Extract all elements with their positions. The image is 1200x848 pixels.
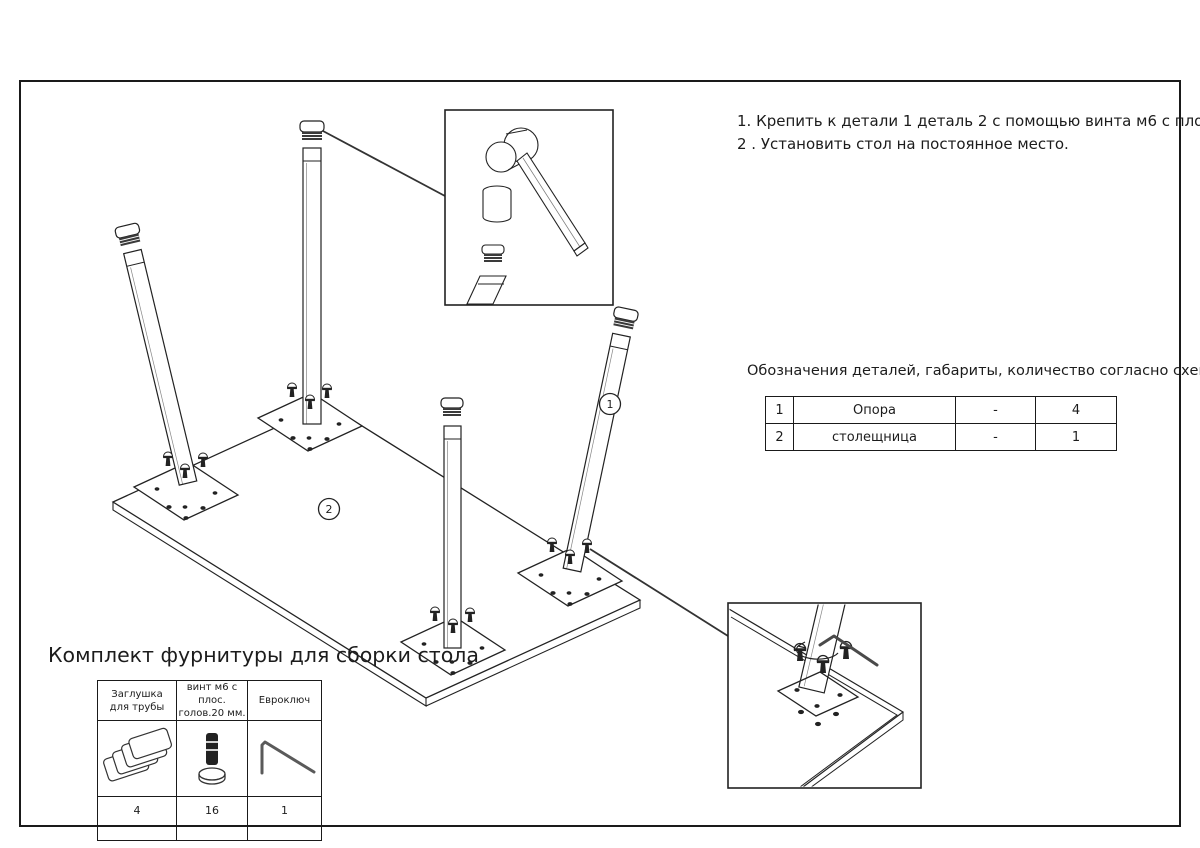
assembly-instructions: 1. Крепить к детали 1 деталь 2 с помощью…	[737, 110, 1200, 156]
part-size: -	[956, 424, 1036, 451]
part-number: 2	[766, 424, 794, 451]
detail-callout-cap	[445, 110, 613, 305]
part-name: Опора	[794, 397, 956, 424]
part-size: -	[956, 397, 1036, 424]
tube-cap-icon	[102, 727, 172, 791]
kit-qty-row: 4 16 1	[98, 797, 322, 841]
kit-item-label: винт м6 с плос. голов.20 мм.	[177, 681, 248, 721]
hex-key-icon	[252, 737, 318, 781]
kit-item-label: Евроключ	[248, 681, 322, 721]
table-leg-right	[560, 306, 639, 572]
part-qty: 1	[1036, 424, 1117, 451]
parts-table-heading: Обозначения деталей, габариты, количеств…	[747, 363, 1200, 379]
kit-icon-row	[98, 721, 322, 797]
part-label-1: 1	[600, 394, 621, 415]
hardware-kit-table: Заглушка для трубы винт м6 с плос. голов…	[97, 680, 322, 841]
kit-item-label: Заглушка для трубы	[98, 681, 177, 721]
parts-table-row: 2 столещница - 1	[766, 424, 1117, 451]
instruction-step-1: 1. Крепить к детали 1 деталь 2 с помощью…	[737, 110, 1200, 133]
part-qty: 4	[1036, 397, 1117, 424]
part-label-2: 2	[319, 499, 340, 520]
part-number: 1	[766, 397, 794, 424]
detail-callout-plate	[728, 595, 921, 796]
kit-header-row: Заглушка для трубы винт м6 с плос. голов…	[98, 681, 322, 721]
leader-line-cap-detail	[323, 131, 445, 196]
svg-text:2: 2	[326, 503, 333, 516]
hardware-kit-title: Комплект фурнитуры для сборки стола	[48, 643, 479, 667]
table-leg-front-center	[441, 398, 463, 648]
screw-icon	[192, 728, 232, 790]
svg-text:1: 1	[607, 398, 614, 411]
parts-table-row: 1 Опора - 4	[766, 397, 1117, 424]
table-leg-back-left	[114, 223, 199, 486]
kit-item-qty: 4	[98, 797, 177, 841]
kit-item-qty: 16	[177, 797, 248, 841]
table-leg-back-right	[300, 121, 324, 424]
instruction-step-2: 2 . Установить стол на постоянное место.	[737, 133, 1200, 156]
part-name: столещница	[794, 424, 956, 451]
drawing-sheet: 1 2	[0, 0, 1200, 848]
kit-item-qty: 1	[248, 797, 322, 841]
parts-table: 1 Опора - 4 2 столещница - 1	[765, 396, 1117, 451]
